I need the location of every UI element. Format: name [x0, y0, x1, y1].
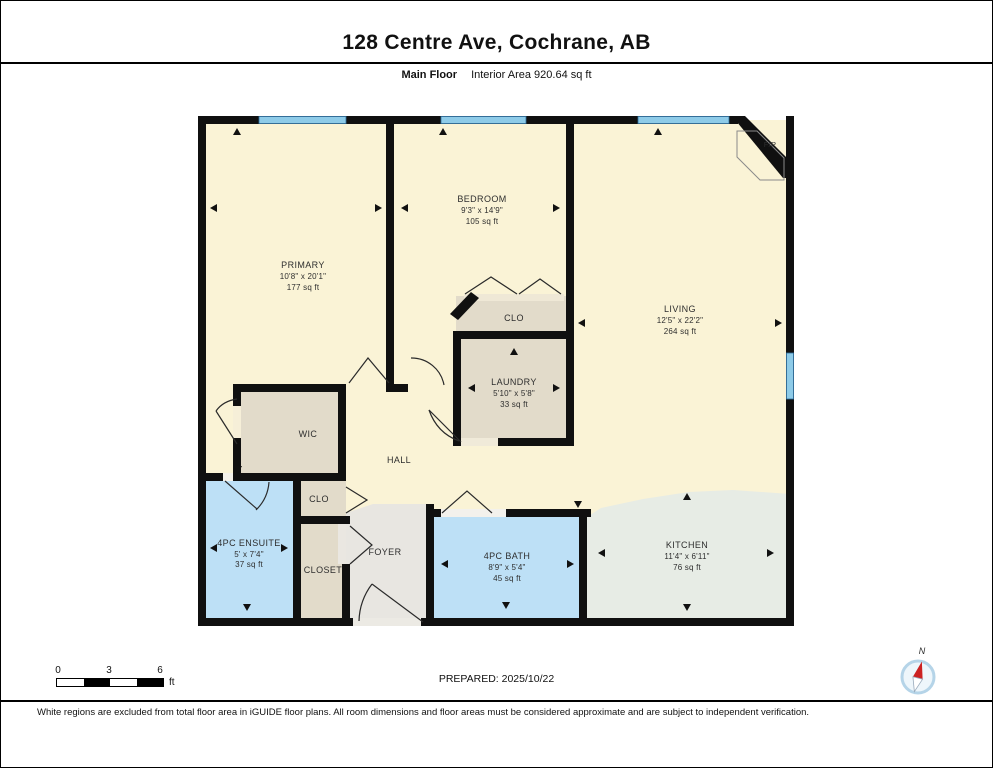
clo-threshold [464, 294, 564, 301]
disclaimer-text: White regions are excluded from total fl… [37, 707, 957, 718]
room-living-label: LIVING [664, 304, 696, 314]
room-bath-area-label: 45 sq ft [493, 574, 521, 583]
room-living-dims: 12'5" x 22'2" [657, 316, 703, 325]
window [638, 117, 729, 124]
room-laundry-dims: 5'10" x 5'8" [493, 389, 535, 398]
room-clo-bedroom-label: CLO [504, 313, 524, 323]
footer-divider [1, 700, 992, 702]
fireplace-label: F/P [764, 140, 777, 149]
floorplan-page: 128 Centre Ave, Cochrane, AB Main FloorI… [0, 0, 993, 768]
bath-threshold [441, 509, 506, 517]
room-ensuite-dims: 5' x 7'4" [234, 550, 264, 559]
room-bath-label: 4PC BATH [484, 551, 531, 561]
window [259, 117, 346, 124]
closet-threshold [338, 524, 346, 564]
room-primary-label: PRIMARY [281, 260, 325, 270]
room-closet-label: CLOSET [304, 565, 343, 575]
laundry-threshold [461, 438, 498, 446]
room-bedroom-area-label: 105 sq ft [466, 217, 499, 226]
prepared-date: PREPARED: 2025/10/22 [1, 673, 992, 685]
room-laundry-label: LAUNDRY [491, 377, 537, 387]
room-primary-dims: 10'8" x 20'1" [280, 272, 326, 281]
room-bedroom-dims: 9'3" x 14'9" [461, 206, 503, 215]
wic-threshold [233, 401, 241, 438]
floorplan-drawing: PRIMARY 10'8" x 20'1" 177 sq ft BEDROOM … [1, 1, 993, 768]
room-kitchen-label: KITCHEN [666, 540, 708, 550]
room-living-area-label: 264 sq ft [664, 327, 697, 336]
room-hall-label: HALL [387, 455, 411, 465]
room-foyer-label: FOYER [368, 547, 401, 557]
room-foyer-area [346, 504, 430, 621]
room-bath-dims: 8'9" x 5'4" [488, 563, 525, 572]
room-ensuite-label: 4PC ENSUITE [217, 538, 280, 548]
room-wic-label: WIC [299, 429, 318, 439]
room-laundry-area-label: 33 sq ft [500, 400, 528, 409]
room-bedroom-label: BEDROOM [457, 194, 506, 204]
room-primary-area-label: 177 sq ft [287, 283, 320, 292]
window [441, 117, 526, 124]
room-wic-area [241, 392, 346, 481]
window [787, 353, 794, 399]
room-kitchen-dims: 11'4" x 6'11" [664, 552, 709, 561]
room-kitchen-area-label: 76 sq ft [673, 563, 701, 572]
room-clo-hall-label: CLO [309, 494, 329, 504]
compass-north-label: N [919, 646, 926, 656]
room-ensuite-area-label: 37 sq ft [235, 560, 263, 569]
entry-threshold [353, 618, 421, 626]
compass: N [891, 643, 951, 703]
